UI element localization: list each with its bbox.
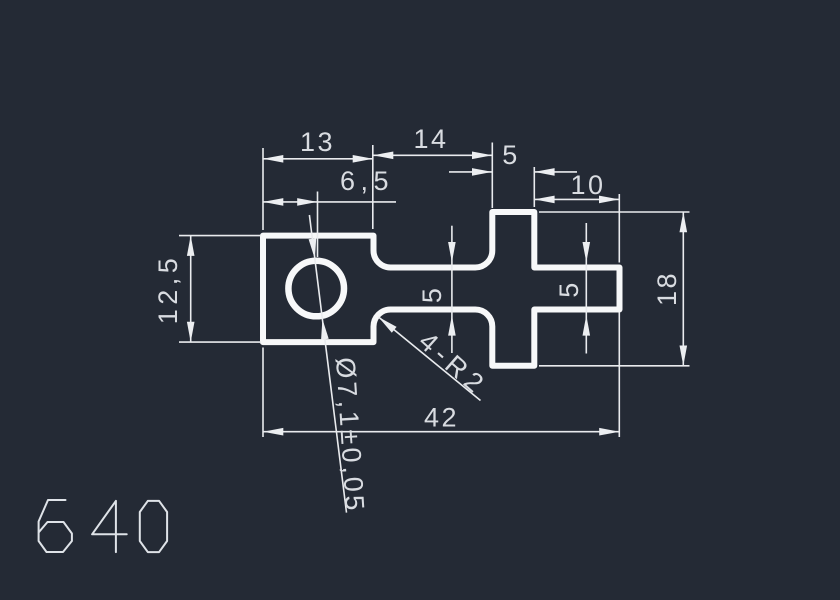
svg-text:5: 5 — [554, 280, 584, 298]
svg-text:42: 42 — [424, 403, 459, 433]
svg-text:5: 5 — [417, 286, 447, 304]
svg-text:18: 18 — [652, 271, 682, 306]
svg-text:12,5: 12,5 — [153, 254, 183, 325]
svg-text:14: 14 — [413, 124, 448, 154]
svg-text:13: 13 — [300, 127, 335, 157]
svg-text:5: 5 — [502, 140, 520, 170]
svg-text:10: 10 — [570, 170, 605, 200]
svg-text:6,5: 6,5 — [340, 166, 394, 196]
